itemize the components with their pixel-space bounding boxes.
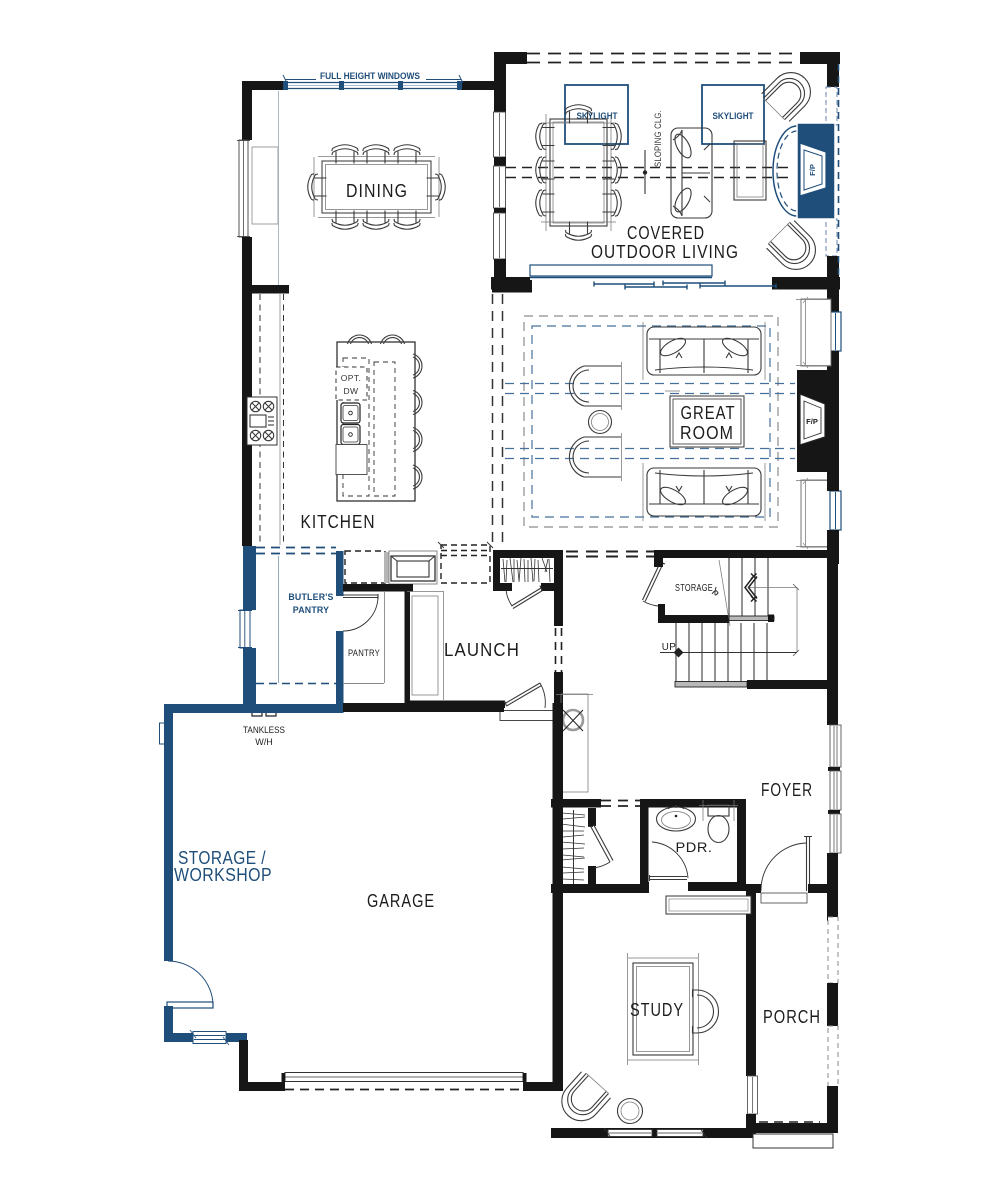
svg-text:WORKSHOP: WORKSHOP: [174, 865, 272, 885]
svg-text:FOYER: FOYER: [761, 780, 813, 800]
svg-text:PANTRY: PANTRY: [348, 648, 380, 659]
svg-text:COVERED: COVERED: [627, 223, 705, 243]
svg-text:TANKLESS: TANKLESS: [243, 725, 285, 735]
svg-text:GREAT: GREAT: [681, 403, 736, 423]
svg-text:PANTRY: PANTRY: [293, 605, 329, 615]
svg-text:LAUNCH: LAUNCH: [444, 640, 520, 660]
svg-text:SKYLIGHT: SKYLIGHT: [713, 111, 754, 122]
svg-text:BUTLER'S: BUTLER'S: [288, 592, 333, 602]
svg-text:OUTDOOR LIVING: OUTDOOR LIVING: [591, 242, 739, 262]
svg-text:F/P: F/P: [806, 417, 818, 426]
svg-text:ROOM: ROOM: [680, 423, 734, 443]
svg-text:F/P: F/P: [808, 164, 817, 176]
svg-text:W/H: W/H: [255, 737, 273, 747]
svg-text:KITCHEN: KITCHEN: [301, 512, 376, 532]
svg-text:SLOPING CLG.: SLOPING CLG.: [653, 110, 664, 167]
svg-text:DINING: DINING: [346, 181, 408, 201]
svg-text:PDR.: PDR.: [676, 840, 713, 855]
svg-text:UP: UP: [662, 642, 676, 653]
svg-text:STUDY: STUDY: [630, 1000, 684, 1020]
svg-text:PORCH: PORCH: [763, 1007, 821, 1027]
svg-text:STORAGE: STORAGE: [675, 583, 713, 594]
svg-text:FULL HEIGHT WINDOWS: FULL HEIGHT WINDOWS: [320, 71, 420, 82]
svg-text:GARAGE: GARAGE: [367, 891, 435, 911]
svg-text:SKYLIGHT: SKYLIGHT: [577, 111, 618, 122]
svg-text:OPT.: OPT.: [341, 373, 362, 383]
svg-text:DW: DW: [344, 386, 359, 396]
